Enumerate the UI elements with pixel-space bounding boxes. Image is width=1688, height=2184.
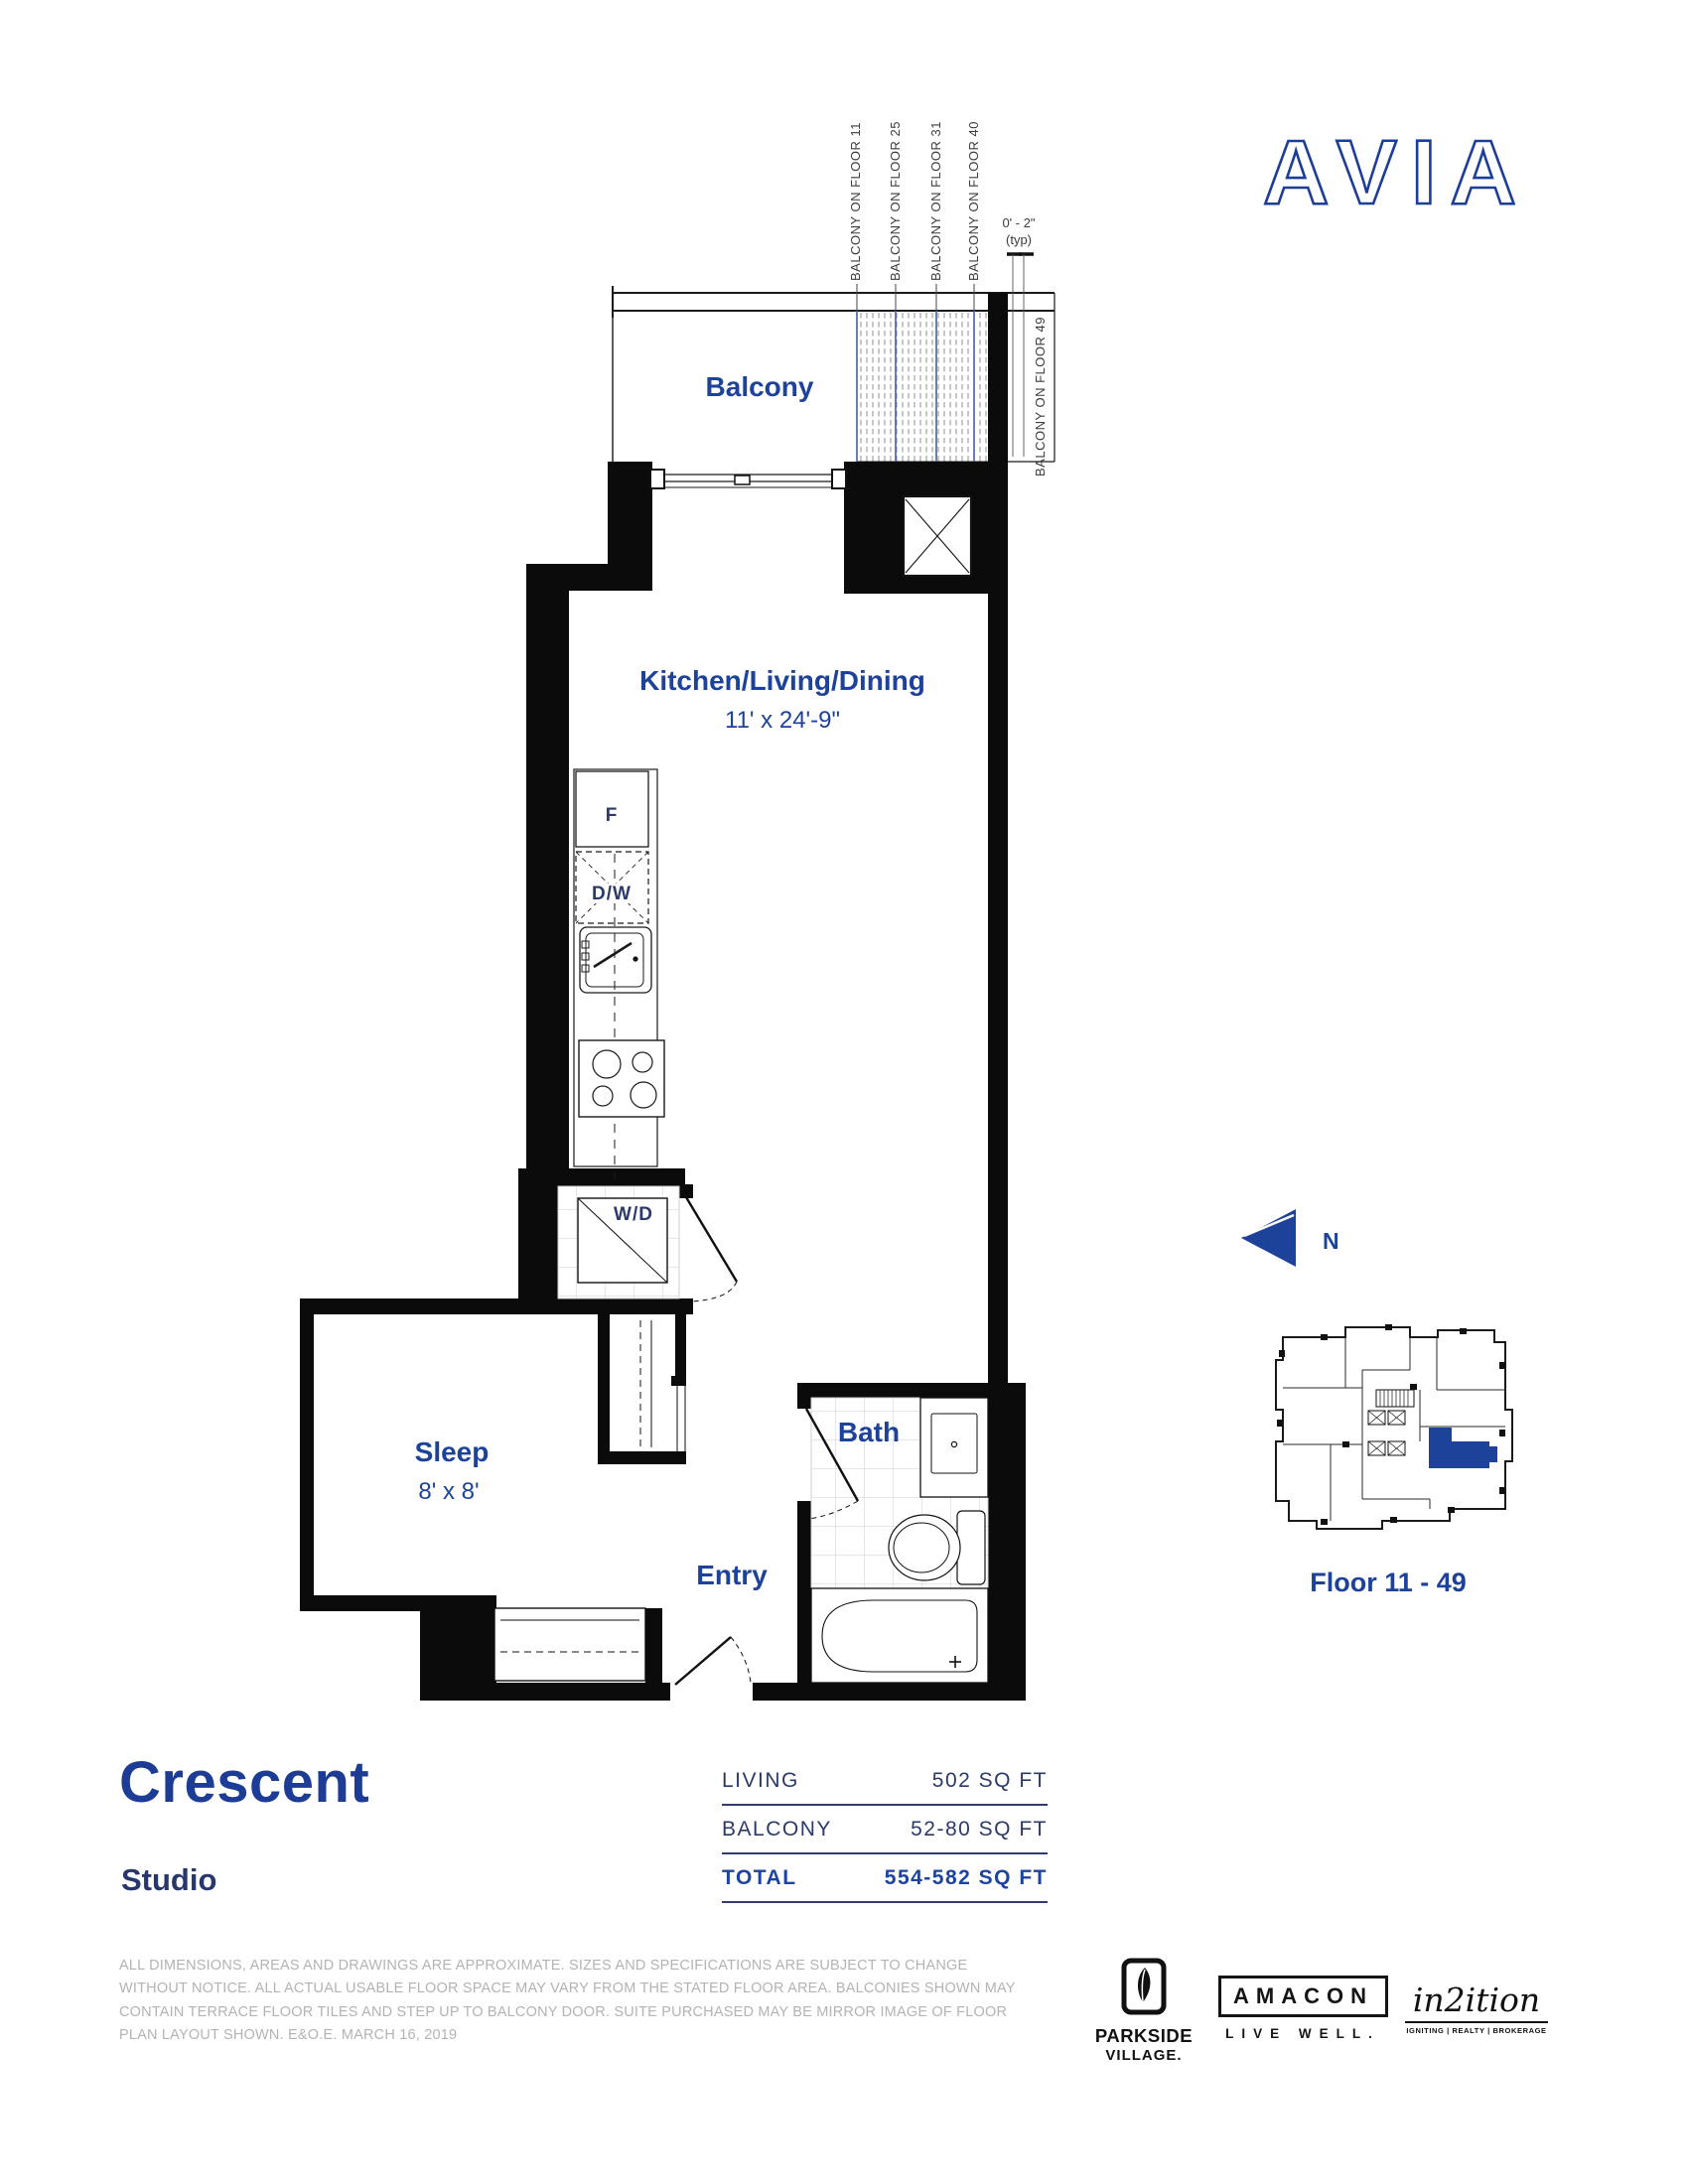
disclaimer-text: ALL DIMENSIONS, AREAS AND DRAWINGS ARE A… [119, 1955, 1033, 2048]
table-row-balcony: BALCONY 52-80 SQ FT [722, 1806, 1048, 1854]
balcony-note-floor40: BALCONY ON FLOOR 40 [966, 121, 981, 281]
table-row-living: LIVING 502 SQ FT [722, 1757, 1048, 1806]
laundry-door-swing [691, 1282, 737, 1301]
balcony-note-floor11: BALCONY ON FLOOR 11 [848, 122, 863, 281]
floorplan-drawing: AVIA [0, 0, 1688, 1737]
disclaimer-line: WITHOUT NOTICE. ALL ACTUAL USABLE FLOOR … [119, 1978, 1033, 2000]
bathtub [811, 1588, 988, 1683]
laundry-door-leaf [686, 1197, 737, 1282]
sleep-dims: 8' x 8' [418, 1478, 479, 1505]
row-value: 554-582 SQ FT [885, 1866, 1048, 1890]
disclaimer-line: ALL DIMENSIONS, AREAS AND DRAWINGS ARE A… [119, 1955, 1033, 1978]
parkside-line2: VILLAGE. [1092, 2047, 1196, 2064]
keyplan-caption: Floor 11 - 49 [1310, 1568, 1467, 1597]
keyplan-building [1276, 1324, 1512, 1529]
parkside-line1: PARKSIDE [1092, 2025, 1196, 2047]
balcony-note-floor49: BALCONY ON FLOOR 49 [1033, 317, 1048, 477]
bath-vanity [920, 1398, 988, 1497]
leaf-icon [1121, 1958, 1167, 2020]
balcony-leader-ticks [857, 284, 974, 311]
in2ition-logo: in2ition IGNITING | REALTY | BROKERAGE [1392, 1980, 1561, 2035]
balcony-note-floor31: BALCONY ON FLOOR 31 [928, 121, 943, 281]
table-row-total: TOTAL 554-582 SQ FT [722, 1854, 1048, 1903]
row-value: 52-80 SQ FT [911, 1818, 1048, 1842]
dim-note-line1: 0' - 2" [1002, 215, 1035, 230]
avia-logo: AVIA [1263, 122, 1530, 223]
disclaimer-line: PLAN LAYOUT SHOWN. E&O.E. MARCH 16, 2019 [119, 2024, 1033, 2047]
row-label: BALCONY [722, 1818, 832, 1842]
floorplan-sheet: AVIA [0, 0, 1688, 2184]
shaft-x-box [904, 496, 971, 576]
washer-dryer-label: W/D [614, 1204, 653, 1225]
north-arrow-icon [1241, 1209, 1296, 1267]
balcony-label: Balcony [706, 371, 814, 402]
entry-bench-closet [494, 1608, 645, 1681]
row-label: TOTAL [722, 1866, 797, 1890]
row-label: LIVING [722, 1769, 799, 1793]
entry-door [675, 1637, 751, 1685]
in2ition-script: in2ition [1405, 1980, 1548, 2023]
amacon-name: AMACON [1218, 1976, 1388, 2017]
bath-label: Bath [838, 1417, 900, 1447]
balcony-note-floor25: BALCONY ON FLOOR 25 [888, 121, 903, 281]
entry-label: Entry [696, 1560, 768, 1590]
sleep-label: Sleep [415, 1436, 490, 1467]
disclaimer-line: CONTAIN TERRACE FLOOR TILES AND STEP UP … [119, 2001, 1033, 2024]
kitchen-counter [574, 769, 664, 1236]
area-table: LIVING 502 SQ FT BALCONY 52-80 SQ FT TOT… [722, 1757, 1048, 1903]
toilet [889, 1511, 985, 1584]
kitchen-label: Kitchen/Living/Dining [639, 665, 925, 696]
dishwasher-label: D/W [592, 884, 632, 904]
suite-type: Studio [121, 1862, 216, 1898]
balcony-sliding-door [650, 470, 846, 488]
dim-note-line2: (typ) [1006, 232, 1032, 247]
fridge-label: F [606, 805, 619, 826]
plan-name: Crescent [119, 1749, 369, 1816]
kitchen-dims: 11' x 24'-9" [725, 707, 840, 734]
north-label: N [1323, 1228, 1339, 1254]
amacon-tagline: LIVE WELL. [1218, 2026, 1387, 2041]
parkside-village-logo: PARKSIDE VILLAGE. [1092, 1958, 1196, 2064]
in2ition-tagline: IGNITING | REALTY | BROKERAGE [1392, 2026, 1561, 2035]
row-value: 502 SQ FT [932, 1769, 1048, 1793]
stove [579, 1040, 664, 1117]
amacon-logo: AMACON LIVE WELL. [1218, 1976, 1387, 2041]
